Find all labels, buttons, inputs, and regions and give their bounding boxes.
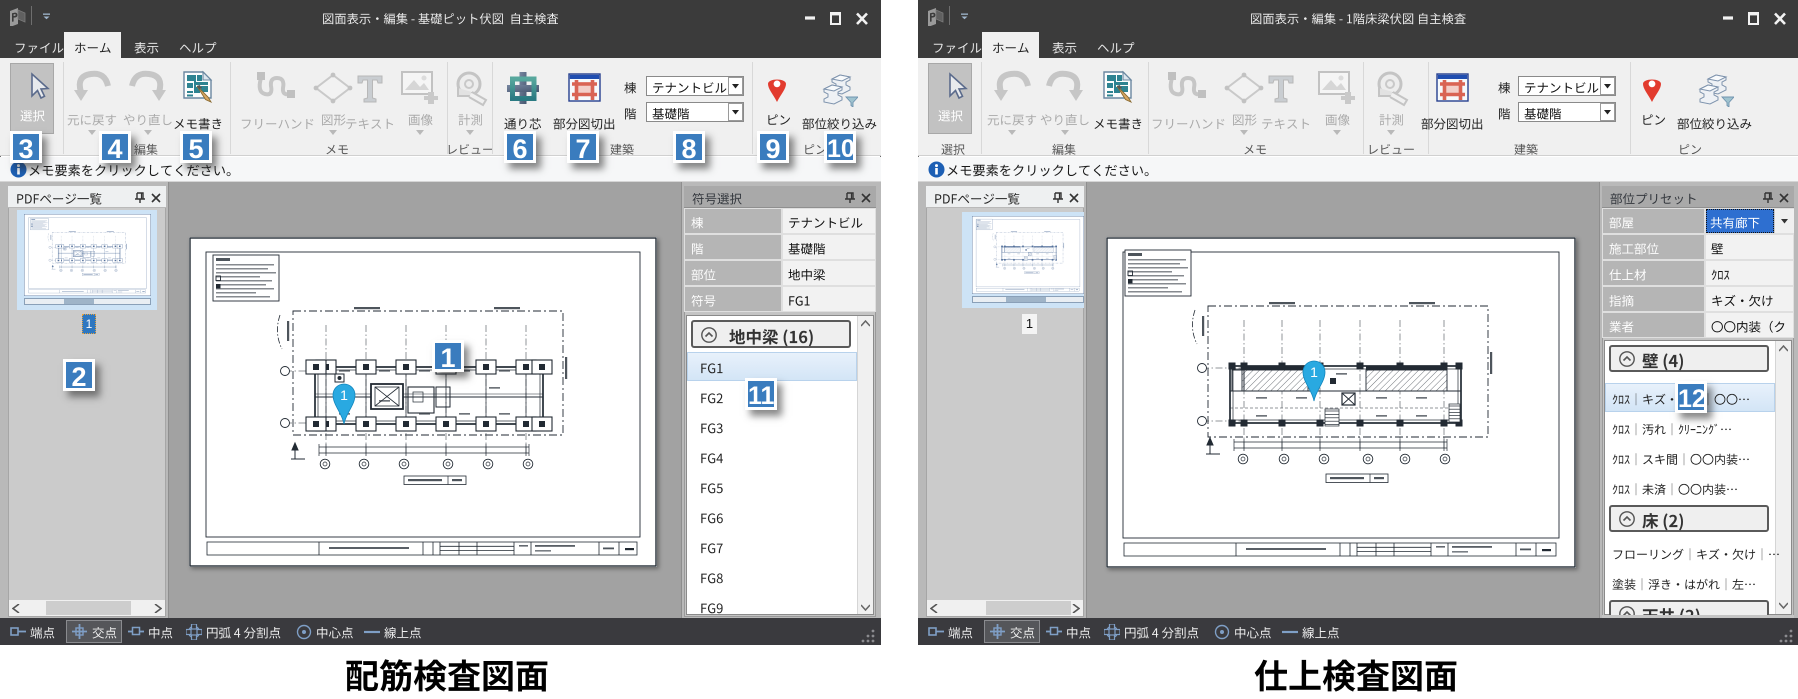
svg-text:1: 1 — [1310, 364, 1318, 380]
svg-text:1: 1 — [340, 387, 348, 403]
